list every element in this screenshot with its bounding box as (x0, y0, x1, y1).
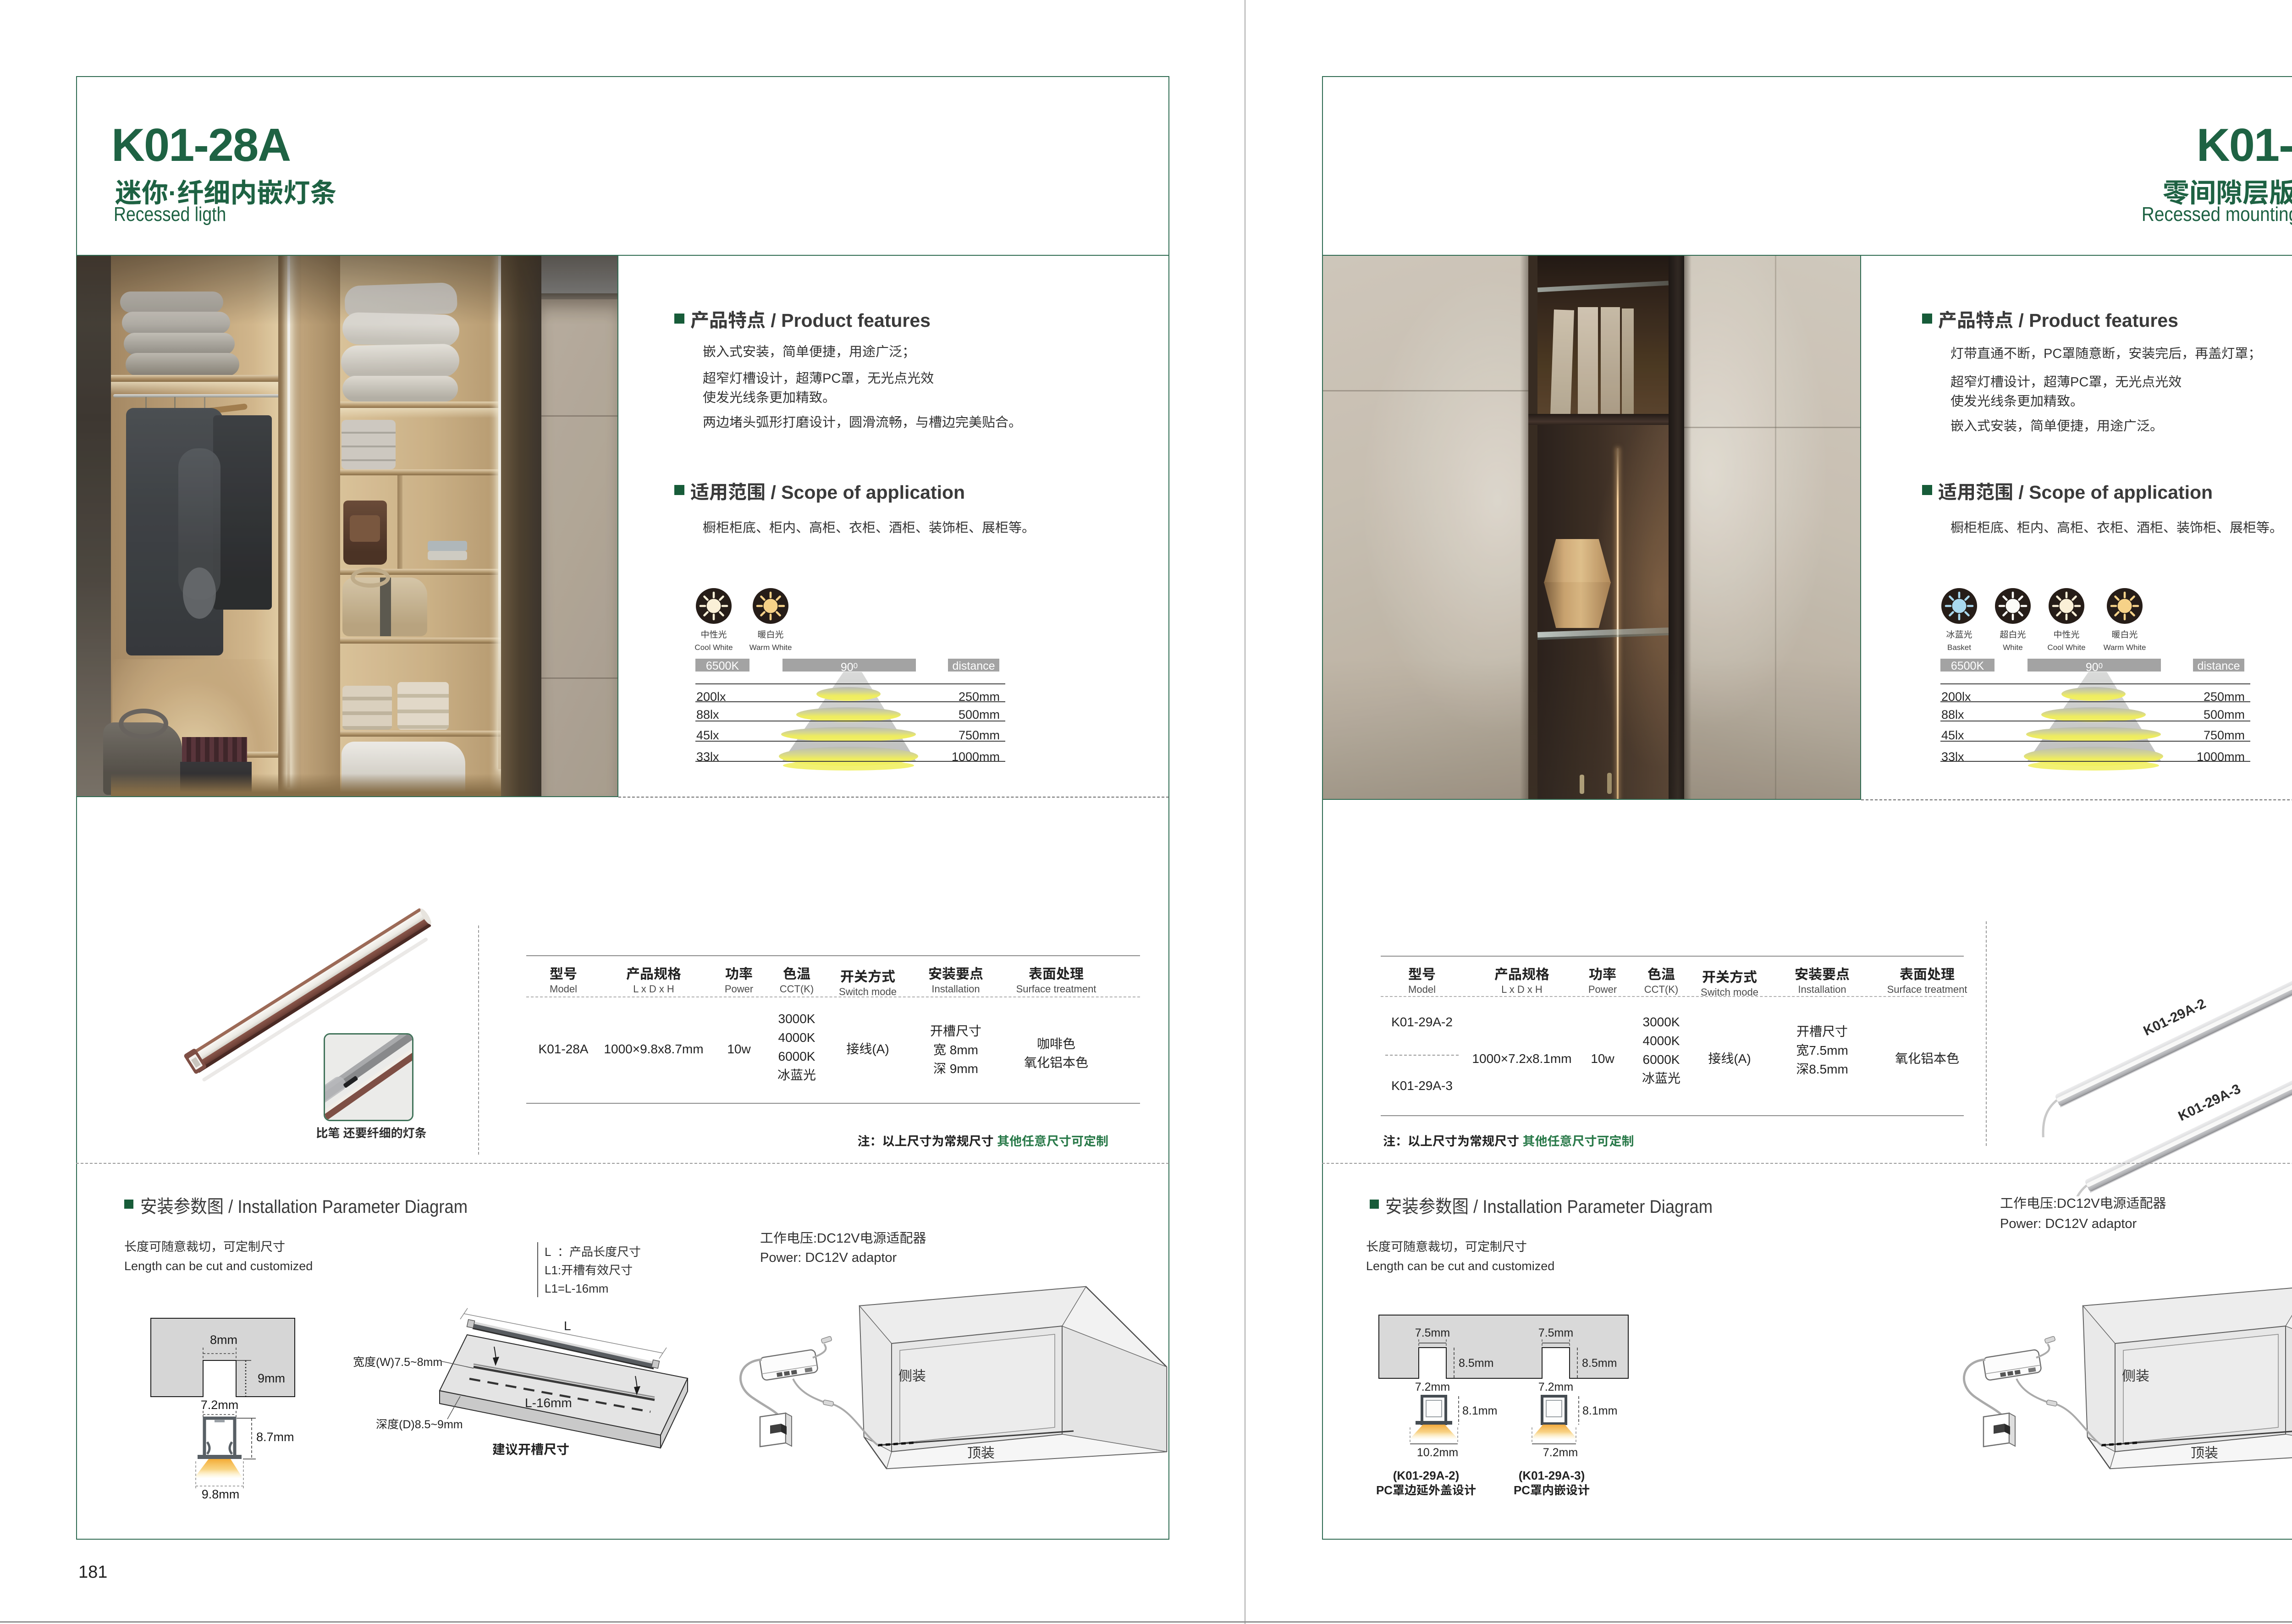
svg-text:L: L (564, 1319, 571, 1333)
svg-text:7.2mm: 7.2mm (1543, 1446, 1578, 1459)
svg-text:侧装: 侧装 (898, 1369, 926, 1384)
svg-text:侧装: 侧装 (2122, 1369, 2149, 1384)
svg-text:9.8mm: 9.8mm (202, 1487, 240, 1501)
svg-text:7.5mm: 7.5mm (1538, 1327, 1573, 1339)
svg-text:顶装: 顶装 (2191, 1446, 2218, 1461)
svg-text:(K01-29A-2): (K01-29A-2) (1393, 1469, 1460, 1482)
svg-text:PC罩边延外盖设计: PC罩边延外盖设计 (1376, 1483, 1476, 1497)
svg-text:L-16mm: L-16mm (525, 1396, 572, 1410)
svg-text:7.5mm: 7.5mm (1415, 1327, 1450, 1339)
svg-text:(K01-29A-3): (K01-29A-3) (1519, 1469, 1585, 1482)
svg-text:10.2mm: 10.2mm (1417, 1446, 1458, 1459)
svg-text:7.2mm: 7.2mm (1538, 1381, 1573, 1393)
svg-text:8.1mm: 8.1mm (1582, 1404, 1617, 1417)
svg-text:9mm: 9mm (258, 1371, 285, 1385)
svg-text:顶装: 顶装 (967, 1446, 995, 1461)
svg-text:8.1mm: 8.1mm (1462, 1404, 1497, 1417)
svg-text:PC罩内嵌设计: PC罩内嵌设计 (1514, 1483, 1590, 1497)
svg-text:8.7mm: 8.7mm (256, 1430, 294, 1444)
svg-text:7.2mm: 7.2mm (201, 1398, 239, 1412)
svg-text:8.5mm: 8.5mm (1582, 1357, 1617, 1370)
svg-text:7.2mm: 7.2mm (1415, 1381, 1450, 1393)
svg-text:8mm: 8mm (210, 1333, 237, 1347)
svg-text:建议开槽尺寸: 建议开槽尺寸 (492, 1442, 569, 1457)
svg-text:8.5mm: 8.5mm (1459, 1357, 1493, 1370)
